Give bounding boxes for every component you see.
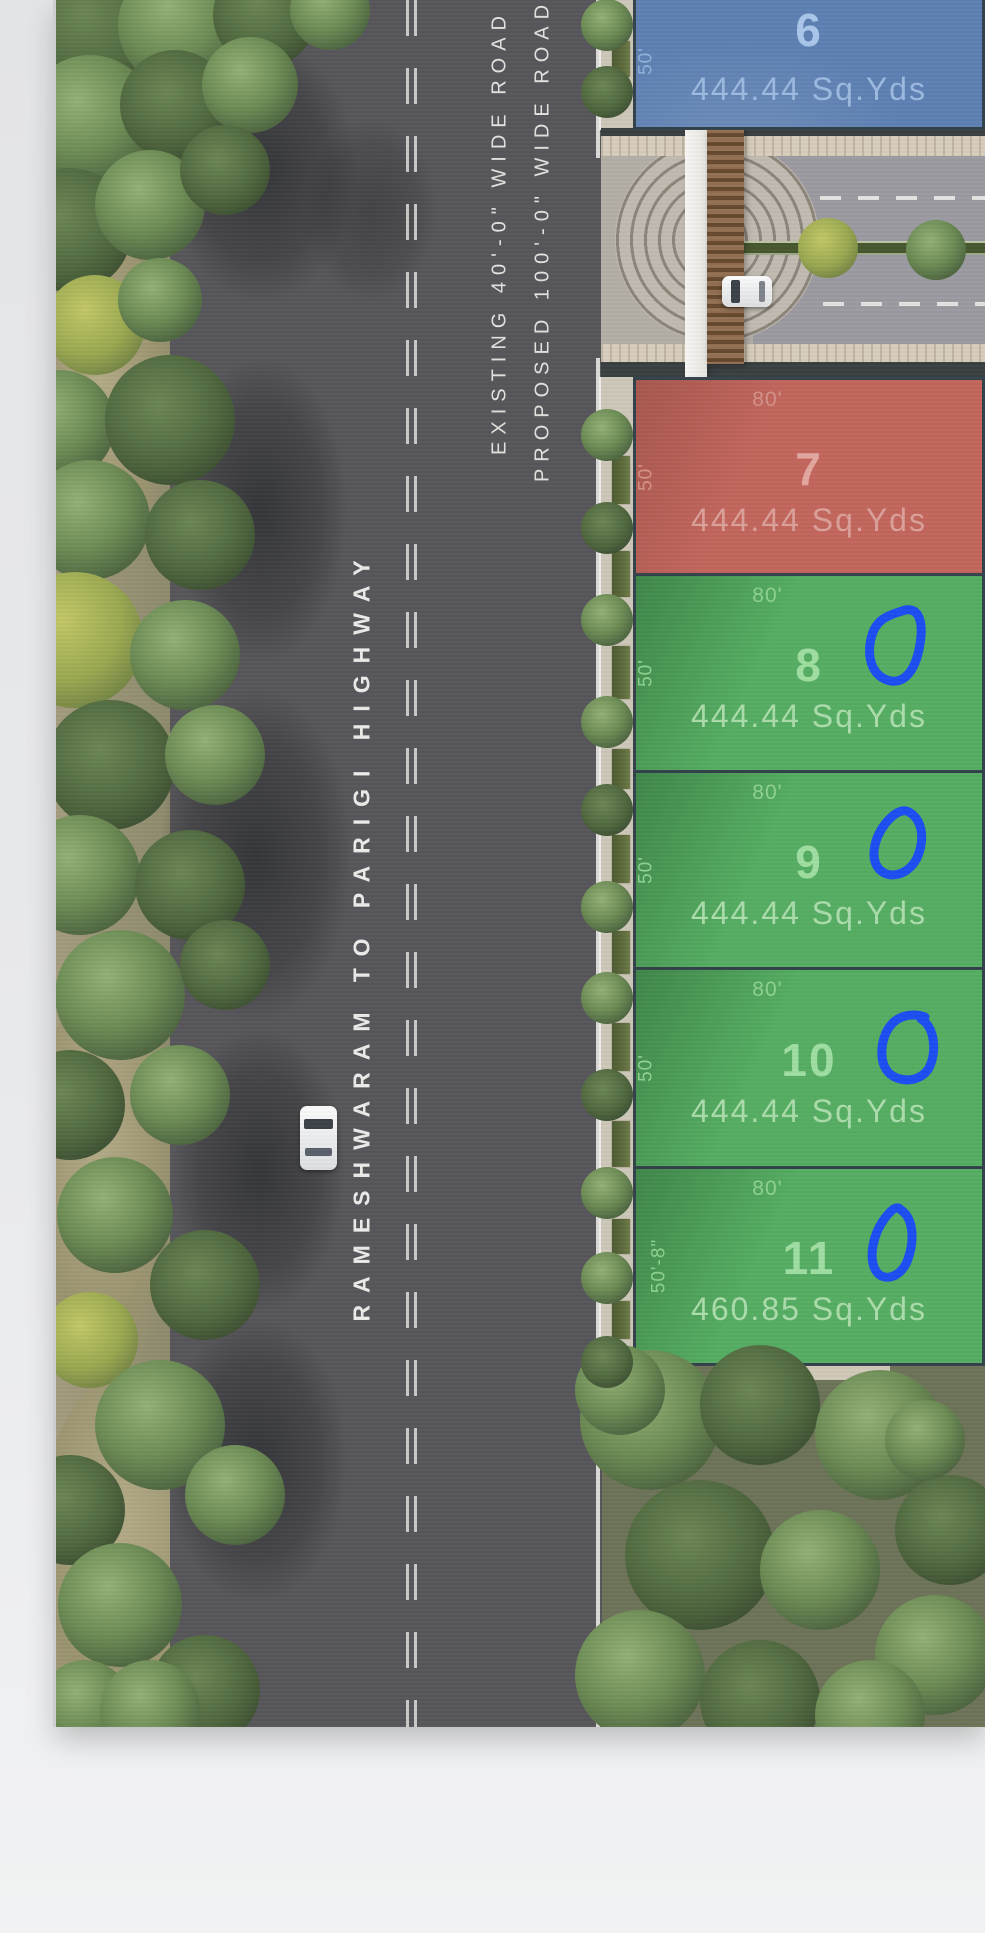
pen-mark-icon — [873, 1010, 941, 1092]
plot-10[interactable]: 80' 50' 10 444.44 Sq.Yds — [633, 967, 985, 1169]
tree-icon — [130, 1045, 230, 1145]
plot-area: 460.85 Sq.Yds — [636, 1293, 982, 1325]
hedge — [611, 455, 631, 505]
plot-width-label: 80' — [752, 585, 782, 606]
plot-7[interactable]: 80' 50' 7 444.44 Sq.Yds — [633, 377, 985, 576]
plot-width-label: 80' — [752, 979, 782, 1000]
hedge — [611, 550, 631, 598]
plot-area: 444.44 Sq.Yds — [636, 700, 982, 732]
hedge — [611, 1218, 631, 1255]
tree-icon — [700, 1345, 820, 1465]
tree-icon — [180, 125, 270, 215]
plot-11[interactable]: 80' 50'-8" 11 460.85 Sq.Yds — [633, 1166, 985, 1366]
hedge — [611, 748, 631, 790]
tree-icon — [185, 1445, 285, 1545]
tree-icon — [150, 1230, 260, 1340]
road-center-dashed-line — [405, 0, 418, 1727]
tree-icon — [165, 705, 265, 805]
pen-mark-icon — [865, 1203, 921, 1287]
pen-mark-icon — [862, 602, 930, 694]
car — [300, 1106, 337, 1170]
plot-9[interactable]: 80' 50' 9 444.44 Sq.Yds — [633, 770, 985, 970]
plot-number: 11 — [636, 1235, 982, 1281]
hedge — [611, 1300, 631, 1340]
plot-area: 444.44 Sq.Yds — [636, 73, 982, 105]
lane-dashes — [823, 302, 985, 306]
lane-dashes — [820, 196, 985, 200]
tree-icon — [581, 1252, 633, 1304]
sidewalk — [601, 344, 985, 362]
tree-icon — [58, 1543, 182, 1667]
plot-area: 444.44 Sq.Yds — [636, 1095, 982, 1127]
tree-icon — [118, 258, 202, 342]
hedge — [611, 834, 631, 884]
plot-area: 444.44 Sq.Yds — [636, 504, 982, 536]
hedge — [611, 645, 631, 700]
entrance-pergola — [707, 128, 744, 364]
tree-icon — [798, 218, 858, 278]
tree-icon — [581, 409, 633, 461]
hedge — [611, 1022, 631, 1072]
tree-icon — [581, 972, 633, 1024]
tree-icon — [105, 355, 235, 485]
tree-icon — [581, 66, 633, 118]
sidewalk — [601, 136, 985, 156]
tree-icon — [581, 784, 633, 836]
proposed-road-label: PROPOSED 100'-0" WIDE ROAD — [532, 0, 555, 482]
tree-icon — [581, 594, 633, 646]
entrance-gate-wall — [685, 128, 707, 377]
site-plan-map[interactable]: RAMESHWARAM TO PARIGI HIGHWAY EXISTING 4… — [56, 0, 985, 1727]
existing-road-label: EXISTING 40'-0" WIDE ROAD — [489, 9, 512, 455]
tree-icon — [56, 930, 185, 1060]
hedge — [611, 1120, 631, 1168]
plot-6[interactable]: 50' 6 444.44 Sq.Yds — [633, 0, 985, 130]
tree-icon — [581, 502, 633, 554]
tree-icon — [145, 480, 255, 590]
tree-icon — [906, 220, 966, 280]
tree-icon — [700, 1640, 820, 1727]
tree-icon — [581, 0, 633, 51]
tree-icon — [581, 881, 633, 933]
plot-number: 7 — [636, 446, 982, 492]
tree-icon — [625, 1480, 775, 1630]
entrance-area — [601, 128, 985, 377]
tree-icon — [130, 600, 240, 710]
tree-icon — [885, 1400, 965, 1480]
car — [722, 276, 772, 307]
plot-number: 6 — [636, 7, 982, 53]
tree-icon — [760, 1510, 880, 1630]
tree-icon — [581, 696, 633, 748]
tree-icon — [180, 920, 270, 1010]
tree-icon — [581, 1167, 633, 1219]
tree-icon — [202, 37, 298, 133]
plot-width-label: 80' — [752, 782, 782, 803]
pen-mark-icon — [865, 805, 931, 885]
plot-width-label: 80' — [752, 1178, 782, 1199]
hedge — [611, 930, 631, 975]
plot-number: 8 — [636, 642, 982, 688]
tree-icon — [57, 1157, 173, 1273]
plot-8[interactable]: 80' 50' 8 444.44 Sq.Yds — [633, 573, 985, 773]
tree-icon — [581, 1069, 633, 1121]
tree-icon — [581, 1336, 633, 1388]
highway-label: RAMESHWARAM TO PARIGI HIGHWAY — [349, 548, 376, 1321]
plot-area: 444.44 Sq.Yds — [636, 897, 982, 929]
plot-width-label: 80' — [752, 389, 782, 410]
